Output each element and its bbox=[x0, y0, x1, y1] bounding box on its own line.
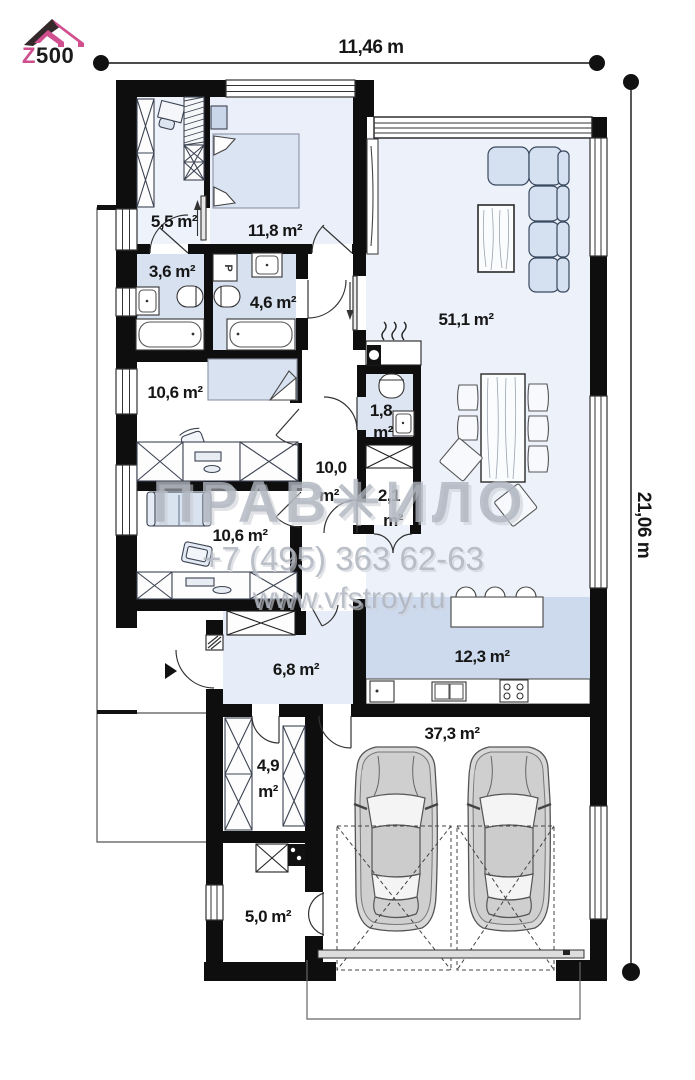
svg-text:11,46 m: 11,46 m bbox=[338, 37, 403, 58]
svg-text:500: 500 bbox=[36, 43, 74, 68]
svg-text:P: P bbox=[222, 264, 234, 271]
svg-text:21,06 m: 21,06 m bbox=[633, 492, 654, 558]
svg-text:5,5 m²: 5,5 m² bbox=[151, 212, 198, 231]
svg-text:10,6 m²: 10,6 m² bbox=[147, 383, 203, 402]
svg-text:4,6 m²: 4,6 m² bbox=[250, 293, 297, 312]
svg-text:1,8: 1,8 bbox=[370, 401, 392, 420]
svg-text:www.vfstroy.ru: www.vfstroy.ru bbox=[252, 582, 446, 615]
svg-text:ПРАВ✳ИЛО: ПРАВ✳ИЛО bbox=[152, 470, 527, 535]
svg-text:5,0 m²: 5,0 m² bbox=[245, 907, 292, 926]
svg-text:+7 (495) 363 62-63: +7 (495) 363 62-63 bbox=[202, 540, 484, 577]
svg-text:m²: m² bbox=[258, 782, 279, 801]
svg-text:51,1 m²: 51,1 m² bbox=[438, 310, 494, 329]
svg-text:37,3 m²: 37,3 m² bbox=[424, 724, 480, 743]
svg-text:3,6 m²: 3,6 m² bbox=[149, 262, 196, 281]
svg-text:m²: m² bbox=[373, 423, 394, 442]
svg-text:12,3 m²: 12,3 m² bbox=[454, 647, 510, 666]
svg-text:Z: Z bbox=[22, 43, 35, 68]
svg-text:6,8 m²: 6,8 m² bbox=[273, 660, 320, 679]
svg-text:4,9: 4,9 bbox=[257, 756, 279, 775]
svg-text:11,8 m²: 11,8 m² bbox=[248, 221, 303, 240]
